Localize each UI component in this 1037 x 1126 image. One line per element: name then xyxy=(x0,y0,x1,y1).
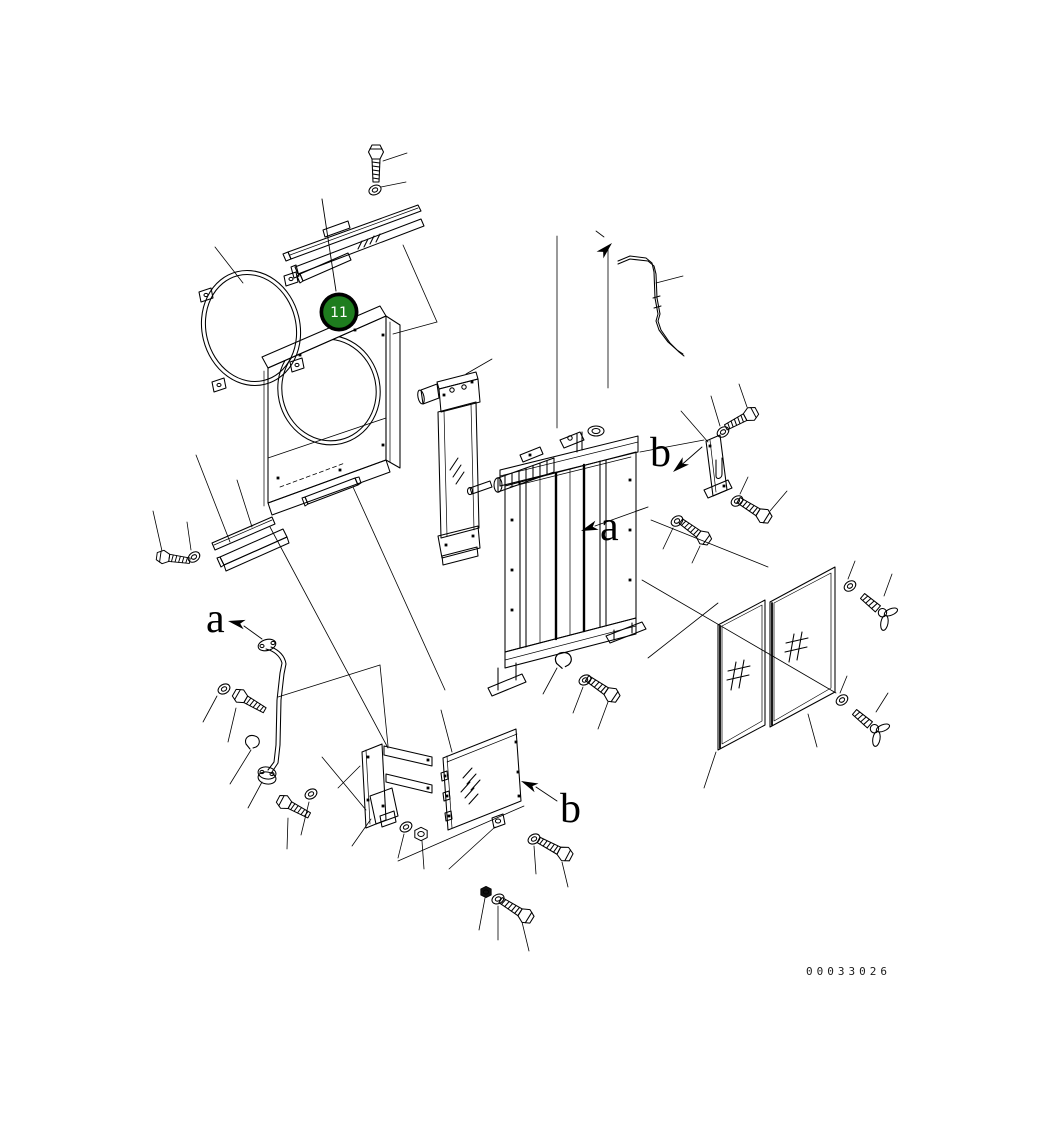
view-b-bottom-label: b xyxy=(560,786,581,832)
mesh-screens xyxy=(642,520,903,788)
seal-strip-assembly-top xyxy=(283,205,437,322)
view-b-bottom: b xyxy=(519,777,581,832)
mesh-screen-left xyxy=(704,600,765,788)
wing-bolt-upper xyxy=(853,586,903,634)
top-mounting-bolt xyxy=(367,145,407,197)
exploded-parts-diagram: 11 a xyxy=(0,0,1037,1126)
top-washer xyxy=(367,183,382,197)
oil-cooler xyxy=(417,359,492,565)
overflow-tube xyxy=(596,231,684,388)
callout-label: 11 xyxy=(330,305,348,321)
mesh-screen-right xyxy=(770,567,835,747)
fan-shroud xyxy=(262,306,445,748)
view-a-center-label: a xyxy=(600,504,619,550)
dark-nut xyxy=(481,886,491,897)
view-b-right-arrow-icon xyxy=(670,457,689,475)
view-a-left-label: a xyxy=(206,596,225,642)
view-a-left-arrow-icon xyxy=(227,616,246,629)
view-a-center: a xyxy=(579,504,648,550)
drawing-number: 00033026 xyxy=(806,965,891,978)
view-a-left: a xyxy=(206,596,262,642)
view-b-right-label: b xyxy=(650,430,671,476)
view-a-center-arrow-icon xyxy=(579,521,598,536)
view-b-bottom-arrow-icon xyxy=(519,777,538,793)
view-b-right: b xyxy=(650,430,702,476)
radiator-assembly xyxy=(468,236,647,696)
fan-guard-ring xyxy=(189,247,312,396)
lower-bracket xyxy=(322,744,432,846)
parts-diagram-page: 11 a xyxy=(0,0,1037,1126)
wing-bolt-lower xyxy=(845,702,895,750)
lower-seal-strips xyxy=(153,455,289,571)
stay-pipe xyxy=(203,637,388,808)
hose-clamp xyxy=(246,735,260,749)
